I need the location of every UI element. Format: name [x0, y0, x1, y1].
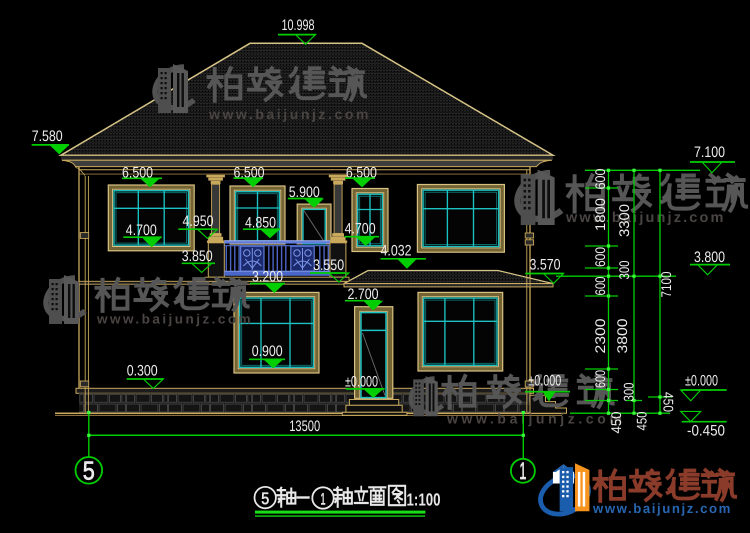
svg-text:-0.450: -0.450 — [687, 422, 725, 439]
svg-text:1: 1 — [519, 458, 526, 485]
svg-text:www.baijunjz.com: www.baijunjz.com — [208, 106, 371, 122]
svg-text:3.800: 3.800 — [694, 249, 725, 266]
svg-text:300: 300 — [616, 260, 632, 279]
svg-text:10.998: 10.998 — [282, 17, 315, 34]
svg-text:600: 600 — [592, 168, 608, 189]
svg-text:1:100: 1:100 — [407, 490, 441, 510]
svg-text:0.300: 0.300 — [127, 363, 158, 380]
svg-text:13500: 13500 — [289, 418, 320, 435]
svg-text:7.580: 7.580 — [32, 128, 63, 145]
svg-text:3300: 3300 — [616, 204, 632, 237]
svg-text:300: 300 — [621, 382, 637, 401]
svg-text:4.950: 4.950 — [183, 213, 214, 230]
svg-text:2300: 2300 — [592, 318, 608, 353]
svg-text:4.700: 4.700 — [345, 220, 376, 237]
svg-text:www.baijunjz.com: www.baijunjz.com — [565, 210, 726, 226]
svg-text:7.100: 7.100 — [694, 144, 725, 161]
svg-text:www.baijunjz.com: www.baijunjz.com — [592, 501, 732, 516]
svg-text:1800: 1800 — [592, 198, 608, 231]
svg-text:5: 5 — [83, 456, 95, 486]
svg-text:450: 450 — [608, 411, 624, 433]
svg-text:600: 600 — [592, 276, 608, 295]
svg-text:3.550: 3.550 — [313, 257, 344, 274]
svg-text:0.900: 0.900 — [252, 343, 283, 360]
svg-text:www.baijunjz.com: www.baijunjz.com — [96, 312, 253, 327]
svg-text:3800: 3800 — [614, 318, 630, 353]
svg-text:±0.000: ±0.000 — [528, 373, 561, 390]
svg-text:600: 600 — [592, 370, 608, 388]
svg-text:4.032: 4.032 — [381, 243, 412, 260]
svg-text:7100: 7100 — [658, 271, 674, 297]
svg-text:450: 450 — [634, 411, 650, 430]
svg-text:3.570: 3.570 — [530, 257, 561, 274]
svg-text:5: 5 — [261, 490, 269, 508]
svg-text:450: 450 — [661, 392, 677, 412]
svg-text:±0.000: ±0.000 — [345, 373, 378, 390]
svg-text:600: 600 — [592, 247, 608, 267]
svg-text:1: 1 — [321, 490, 326, 508]
svg-text:±0.000: ±0.000 — [685, 373, 718, 390]
